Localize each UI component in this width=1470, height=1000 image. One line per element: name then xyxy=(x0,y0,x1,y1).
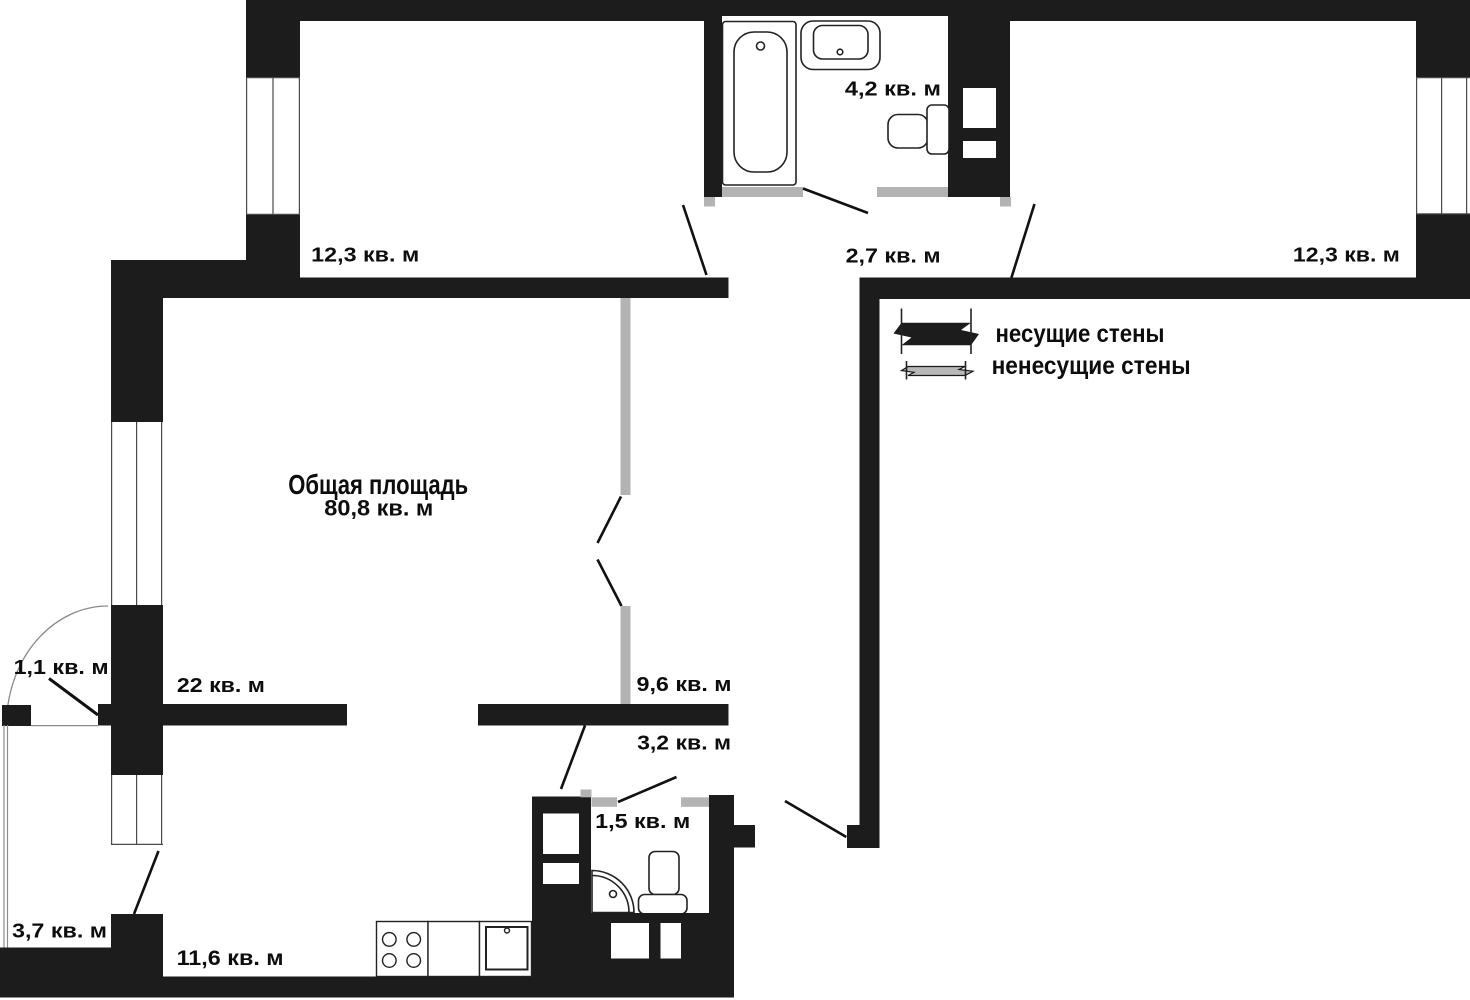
svg-text:80,8 кв. м: 80,8 кв. м xyxy=(324,495,433,520)
svg-text:1,1 кв. м: 1,1 кв. м xyxy=(14,656,109,679)
svg-text:1,5 кв. м: 1,5 кв. м xyxy=(595,810,690,833)
svg-text:ненесущие стены: ненесущие стены xyxy=(992,352,1191,380)
svg-text:несущие стены: несущие стены xyxy=(996,320,1165,348)
svg-text:11,6 кв. м: 11,6 кв. м xyxy=(177,947,284,970)
svg-text:3,7 кв. м: 3,7 кв. м xyxy=(12,920,107,943)
svg-text:22 кв. м: 22 кв. м xyxy=(177,674,265,697)
svg-text:4,2 кв. м: 4,2 кв. м xyxy=(845,78,941,101)
svg-text:9,6 кв. м: 9,6 кв. м xyxy=(637,673,732,696)
svg-text:12,3 кв. м: 12,3 кв. м xyxy=(311,244,419,267)
svg-text:3,2 кв. м: 3,2 кв. м xyxy=(637,732,731,755)
svg-text:12,3 кв. м: 12,3 кв. м xyxy=(1293,244,1400,267)
svg-text:2,7 кв. м: 2,7 кв. м xyxy=(846,245,941,268)
